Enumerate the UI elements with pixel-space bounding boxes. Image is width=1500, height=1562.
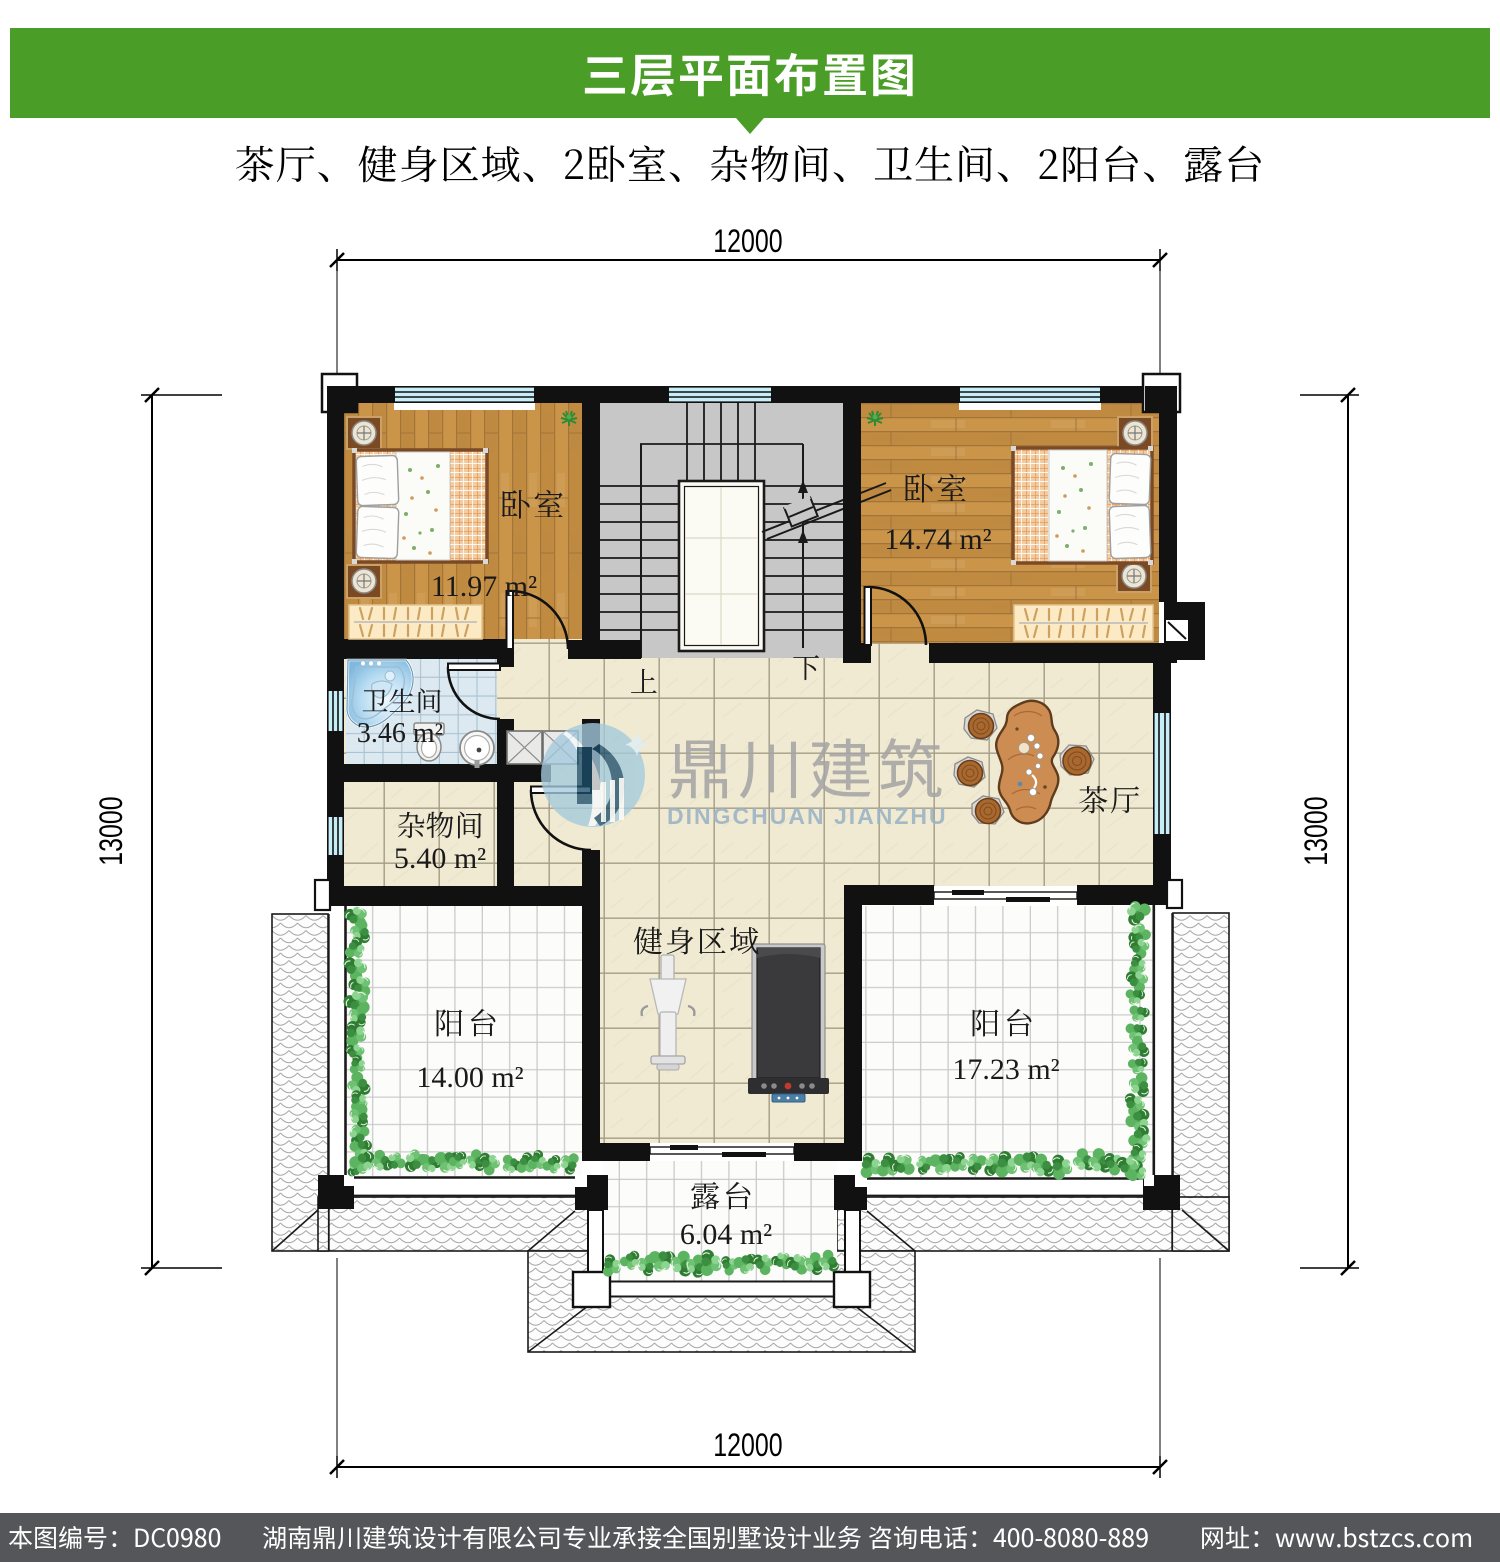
svg-text:露台: 露台 <box>690 1172 756 1216</box>
svg-text:上: 上 <box>630 661 658 701</box>
svg-text:杂物间: 杂物间 <box>396 804 483 845</box>
svg-text:13000: 13000 <box>94 796 130 865</box>
svg-text:DINGCHUAN JIANZHU: DINGCHUAN JIANZHU <box>667 803 948 829</box>
svg-text:下: 下 <box>792 647 820 687</box>
svg-text:14.74 m²: 14.74 m² <box>884 523 991 556</box>
svg-text:卫生间: 卫生间 <box>362 680 443 719</box>
svg-text:茶厅: 茶厅 <box>1078 776 1142 820</box>
svg-text:卧室: 卧室 <box>903 464 969 509</box>
svg-text:卧室: 卧室 <box>500 480 566 525</box>
svg-text:阳台: 阳台 <box>434 999 502 1043</box>
svg-text:鼎川建筑: 鼎川建筑 <box>668 718 948 812</box>
svg-text:13000: 13000 <box>1299 796 1335 865</box>
svg-text:6.04 m²: 6.04 m² <box>680 1218 772 1251</box>
svg-text:3.46 m²: 3.46 m² <box>357 718 443 749</box>
svg-text:14.00 m²: 14.00 m² <box>416 1061 523 1094</box>
svg-text:11.97 m²: 11.97 m² <box>431 570 537 603</box>
svg-text:健身区域: 健身区域 <box>633 917 761 961</box>
svg-text:5.40 m²: 5.40 m² <box>394 842 486 875</box>
svg-text:12000: 12000 <box>713 224 782 260</box>
svg-text:12000: 12000 <box>713 1428 782 1464</box>
svg-text:17.23 m²: 17.23 m² <box>952 1053 1059 1086</box>
svg-text:阳台: 阳台 <box>970 999 1038 1043</box>
